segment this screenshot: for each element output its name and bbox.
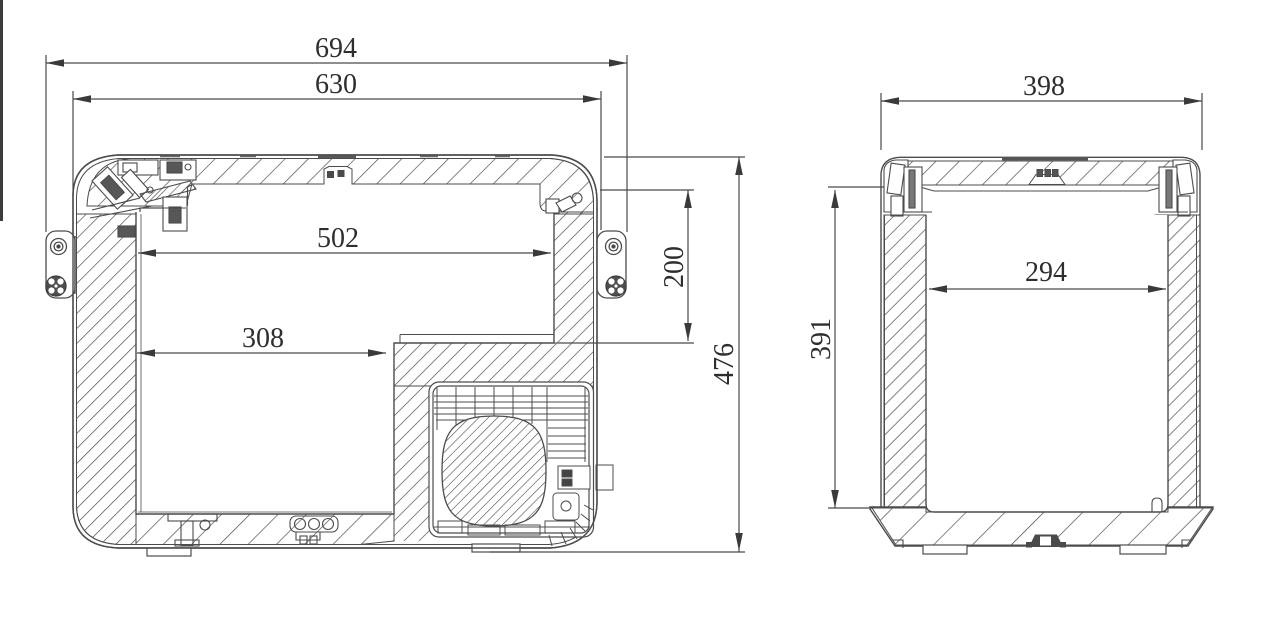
svg-text:391: 391 <box>806 318 837 360</box>
svg-text:308: 308 <box>242 323 284 354</box>
svg-text:502: 502 <box>317 223 359 254</box>
svg-text:398: 398 <box>1023 71 1065 102</box>
svg-text:476: 476 <box>709 343 740 385</box>
svg-text:200: 200 <box>659 246 690 288</box>
svg-text:630: 630 <box>315 69 357 100</box>
svg-text:694: 694 <box>315 33 357 64</box>
svg-text:294: 294 <box>1025 257 1067 288</box>
